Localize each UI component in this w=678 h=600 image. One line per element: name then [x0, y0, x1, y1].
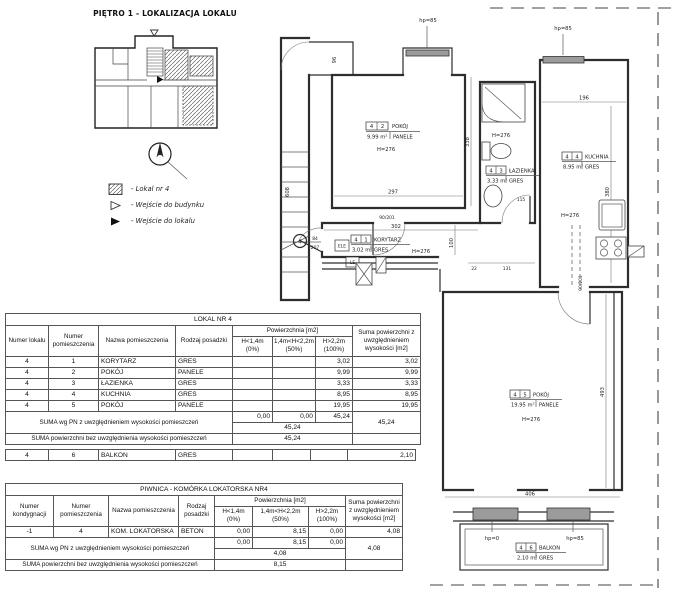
column-header: Numer lokalu: [6, 326, 49, 357]
door-size: 90/201: [379, 215, 395, 221]
table-cell: GRES: [176, 389, 233, 400]
sill-height-hp85: hp=85: [566, 536, 584, 542]
column-header: Suma powierzchni z uwzględnieniem wysoko…: [346, 496, 403, 527]
table-cell: [273, 378, 316, 389]
table-cell: BETON: [179, 526, 215, 537]
room-height: H=276: [522, 417, 540, 423]
table-row: 43ŁAZIENKAGRES3,333,33: [6, 378, 421, 389]
dim-196: 196: [579, 96, 589, 102]
table-cell: [273, 400, 316, 411]
table-cell: 5: [49, 400, 99, 411]
table-cell: 4: [6, 400, 49, 411]
window-sill-height: hp=85: [419, 18, 437, 24]
column-header: Rodzaj posadzki: [179, 496, 215, 527]
table-cell: [273, 450, 311, 461]
window: [406, 50, 449, 56]
room-floor: PANELE: [539, 403, 559, 409]
table-row: -14KOM. LOKATORSKABETON0,008,150,004,08: [6, 526, 403, 537]
table-cell: 19,95: [315, 400, 352, 411]
table-cell: POKÓJ: [99, 367, 176, 378]
table-cell: 2,10: [348, 450, 416, 461]
sum-cell: 0,00: [309, 537, 346, 548]
empty-cell: [352, 433, 420, 444]
room-area: 9,99 m²: [367, 135, 387, 141]
balkon-row-table: 46BALKONGRES2,10: [5, 449, 416, 461]
sum-cell: 8,15: [253, 537, 309, 548]
column-header: Numer pomieszczenia: [54, 496, 109, 527]
room-area: 3,33 m²: [487, 179, 507, 185]
table-cell: 4: [6, 389, 49, 400]
table-cell: [233, 400, 273, 411]
table-cell: PANELE: [176, 400, 233, 411]
empty-cell: [346, 559, 403, 570]
table-cell: 0,00: [215, 526, 253, 537]
column-subheader: H<1,4m (0%): [233, 337, 273, 356]
table-cell: 6: [49, 450, 99, 461]
room-height: H=276: [377, 147, 395, 153]
unit-entry-marker-icon: [157, 76, 164, 83]
column-subheader: 1,4m<H<2,2m (50%): [273, 337, 316, 356]
table-cell: 9,99: [315, 367, 352, 378]
sum-total: 45,24: [352, 411, 420, 433]
table-cell: POKÓJ: [99, 400, 176, 411]
dim-100: 100: [449, 238, 455, 248]
sum-cell: 0,00: [215, 537, 253, 548]
table-cell: [233, 450, 273, 461]
electrical-box-label: ELE: [338, 244, 346, 250]
mini-stairs: [147, 48, 163, 76]
legend-label: - Wejście do lokalu: [131, 217, 195, 225]
table-cell: GRES: [176, 356, 233, 367]
sum-value: 45,24: [233, 433, 353, 444]
room-area: 8,95 m²: [563, 165, 583, 171]
dim-96: 96: [332, 57, 338, 64]
table-row: 41KORYTARZGRES3,023,02: [6, 356, 421, 367]
room-label-pokoj5: 4 5 POKÓJ 19,95 m² PANELE H=276: [510, 390, 562, 423]
area-table-piwnica: PIWNICA - KOMÓRKA LOKATORSKA NR4Numer ko…: [5, 483, 403, 571]
svg-text:6: 6: [529, 546, 532, 552]
table-cell: [311, 450, 348, 461]
table-row: 46BALKONGRES2,10: [6, 450, 416, 461]
table-cell: 4,08: [346, 526, 403, 537]
table-cell: [273, 356, 316, 367]
room-area: 2,10 m²: [517, 556, 537, 562]
room-kuchnia: hp=85 196 380 H=276 4 4 KUCHNIA: [540, 26, 644, 287]
location-map: [88, 28, 238, 180]
sill-height-hp0: hp=0: [485, 536, 499, 542]
room-floor: GRES: [374, 248, 388, 254]
room-area: 19,95 m²: [511, 403, 535, 409]
balcony-window: [547, 508, 590, 520]
drawing-sheet: PIĘTRO 1 - LOKALIZACJA LOKALU: [0, 0, 678, 600]
table-cell: 4: [6, 378, 49, 389]
dim-338: 338: [465, 137, 471, 147]
table-cell: [233, 356, 273, 367]
svg-text:1: 1: [364, 238, 367, 244]
svg-text:2: 2: [381, 124, 384, 130]
dim-131: 131: [503, 266, 512, 272]
staircase: 608 96: [281, 38, 353, 300]
dim-493: 493: [600, 387, 606, 397]
sum-label: SUMA powierzchni bez uwzględnienia wysok…: [6, 559, 215, 570]
room-lazienka: H=276 115 4 3 ŁAZIENKA 3,33 m² GRES: [480, 82, 540, 223]
door-size: 90/201: [578, 275, 584, 291]
entrance-door-width: 84: [312, 236, 318, 242]
table-title: PIWNICA - KOMÓRKA LOKATORSKA NR4: [6, 484, 403, 496]
table-cell: PANELE: [176, 367, 233, 378]
column-subheader: H>2,2m (100%): [309, 507, 346, 526]
area-table-lokal4: LOKAL NR 4Numer lokaluNumer pomieszczeni…: [5, 313, 421, 445]
table-cell: 1: [49, 356, 99, 367]
building-entry-marker-icon: [151, 30, 159, 36]
sum-cell: 45,24: [315, 411, 352, 422]
room-height: H=276: [412, 249, 430, 255]
legend-item-lokal4: - Lokal nr 4: [108, 181, 204, 197]
room-floor: GRES: [585, 165, 599, 171]
table-cell: 4: [54, 526, 109, 537]
table-cell: 4: [6, 367, 49, 378]
table-cell: ŁAZIENKA: [99, 378, 176, 389]
room-label-balkon: 4 6 BALKON 2,10 m² GRES: [516, 543, 566, 562]
sum-total: 4,08: [346, 537, 403, 559]
column-header: Suma powierzchni z uwzględnieniem wysoko…: [352, 326, 420, 357]
table-title: LOKAL NR 4: [6, 314, 421, 326]
table-cell: 3,02: [315, 356, 352, 367]
map-legend: - Lokal nr 4 - Wejście do budynku - Wejś…: [108, 181, 204, 229]
sum-label: SUMA wg PN z uwzględnieniem wysokości po…: [6, 411, 233, 433]
table-cell: -1: [6, 526, 54, 537]
table-cell: 3,33: [352, 378, 420, 389]
table-cell: [273, 389, 316, 400]
column-header: Nazwa pomieszczenia: [109, 496, 179, 527]
table-cell: [273, 367, 316, 378]
room-balkon: hp=0 hp=85 4 6 BALKON 2,10 m² GRES: [453, 508, 614, 570]
room-floor: GRES: [509, 179, 523, 185]
dim-302: 302: [391, 224, 401, 230]
window: [543, 57, 584, 64]
table-cell: 19,95: [352, 400, 420, 411]
column-header-group: Powierzchnia [m2]: [233, 326, 353, 337]
table-cell: 4: [6, 450, 49, 461]
table-cell: KUCHNIA: [99, 389, 176, 400]
table-cell: KOM. LOKATORSKA: [109, 526, 179, 537]
dim-608: 608: [285, 187, 291, 197]
table-cell: 0,00: [309, 526, 346, 537]
legend-label: - Wejście do budynku: [131, 201, 204, 209]
window-sill-height: hp=85: [554, 26, 572, 32]
dim-406: 406: [525, 492, 535, 498]
svg-text:5: 5: [523, 393, 526, 399]
table-cell: BALKON: [99, 450, 176, 461]
table-cell: [233, 378, 273, 389]
exterior-wall-and-flues: [322, 257, 440, 292]
table-cell: 8,95: [352, 389, 420, 400]
table-cell: [233, 367, 273, 378]
room-height: H=276: [561, 213, 579, 219]
sum-cell: 0,00: [273, 411, 316, 422]
column-header-group: Powierzchnia [m2]: [215, 496, 346, 507]
table-cell: [233, 389, 273, 400]
column-subheader: H<1,4m (0%): [215, 507, 253, 526]
entrance-door-height: 207: [311, 245, 320, 251]
mini-unit4-hatched-areas: [165, 50, 213, 125]
location-map-title: PIĘTRO 1 - LOKALIZACJA LOKALU: [83, 9, 247, 18]
legend-item-unit-entry: - Wejście do lokalu: [108, 213, 204, 229]
table-cell: 4: [49, 389, 99, 400]
room-floor: GRES: [539, 556, 553, 562]
table-cell: GRES: [176, 450, 233, 461]
room-name: KUCHNIA: [585, 155, 609, 161]
room-label-lazienka: 4 3 ŁAZIENKA 3,33 m² GRES: [486, 166, 540, 185]
area-table: LOKAL NR 4Numer lokaluNumer pomieszczeni…: [5, 313, 421, 445]
room-floor: PANELE: [393, 135, 413, 141]
hatch-swatch-icon: [108, 183, 124, 196]
legend-label: - Lokal nr 4: [131, 185, 169, 193]
triangle-filled-icon: [108, 215, 124, 228]
table-cell: 4: [6, 356, 49, 367]
sum-merged: 45,24: [233, 422, 353, 433]
room-name: POKÓJ: [533, 392, 549, 399]
room-name: BALKON: [539, 546, 560, 552]
table-cell: 3,33: [315, 378, 352, 389]
room-label-kuchnia: 4 4 KUCHNIA 8,95 m² GRES: [562, 152, 616, 171]
triangle-outline-icon: [108, 199, 124, 212]
balcony-door-window: [473, 508, 518, 520]
sum-value: 8,15: [215, 559, 346, 570]
room-name: KORYTARZ: [374, 238, 402, 244]
room-pokoj-5: 90/201 493 406 4 5 POKÓJ 19,95 m² PANELE…: [443, 275, 622, 497]
unit-entrance-number: 4: [298, 240, 302, 246]
table-row: 45POKÓJPANELE19,9519,95: [6, 400, 421, 411]
table-row: 42POKÓJPANELE9,999,99: [6, 367, 421, 378]
table-cell: 3: [49, 378, 99, 389]
dim-380: 380: [605, 187, 611, 197]
table-cell: 9,99: [352, 367, 420, 378]
sum-cell: 0,00: [233, 411, 273, 422]
room-name: POKÓJ: [392, 123, 408, 130]
table-cell: 3,02: [352, 356, 420, 367]
area-table: PIWNICA - KOMÓRKA LOKATORSKA NR4Numer ko…: [5, 483, 403, 571]
legend-item-building-entry: - Wejście do budynku: [108, 197, 204, 213]
room-name: ŁAZIENKA: [508, 169, 535, 175]
table-cell: GRES: [176, 378, 233, 389]
room-area: 3,02 m²: [352, 248, 372, 254]
table-row: 44KUCHNIAGRES8,958,95: [6, 389, 421, 400]
sum-merged: 4,08: [215, 548, 346, 559]
sum-label: SUMA powierzchni bez uwzględnienia wysok…: [6, 433, 233, 444]
column-header: Numer pomieszczenia: [49, 326, 99, 357]
table-cell: 8,95: [315, 389, 352, 400]
column-header: Nazwa pomieszczenia: [99, 326, 176, 357]
dim-297: 297: [388, 190, 398, 196]
table-cell: 2: [49, 367, 99, 378]
dim-115: 115: [517, 197, 526, 203]
dim-22: 22: [471, 266, 477, 272]
table-cell: 8,15: [253, 526, 309, 537]
table-cell: KORYTARZ: [99, 356, 176, 367]
area-table-balkon-row: 46BALKONGRES2,10: [5, 449, 416, 461]
compass-rose-icon: [149, 143, 187, 180]
svg-text:3: 3: [499, 169, 502, 175]
column-subheader: 1,4m<H<2,2m (50%): [253, 507, 309, 526]
property-boundary-lines: [430, 8, 676, 588]
column-header: Rodzaj posadzki: [176, 326, 233, 357]
sum-label: SUMA wg PN z uwzględnieniem wysokości po…: [6, 537, 215, 559]
room-label-pokoj2: 4 2 POKÓJ 9,99 m² PANELE H=276: [366, 122, 420, 153]
column-subheader: H>2,2m (100%): [315, 337, 352, 356]
column-header: Numer kondygnacji: [6, 496, 54, 527]
room-height: H=276: [492, 133, 510, 139]
